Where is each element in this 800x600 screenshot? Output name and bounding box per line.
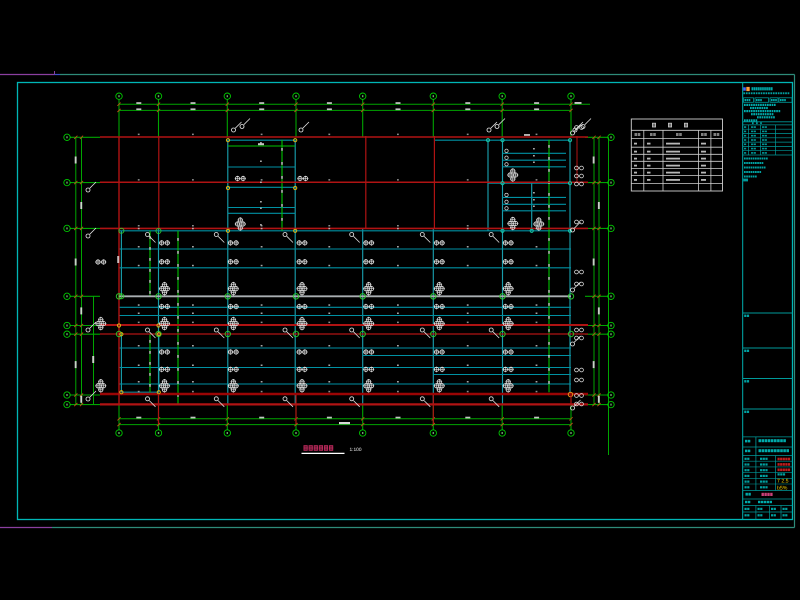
svg-text:7 2.5: 7 2.5 [777,479,789,485]
svg-text:1:100: 1:100 [350,447,362,453]
